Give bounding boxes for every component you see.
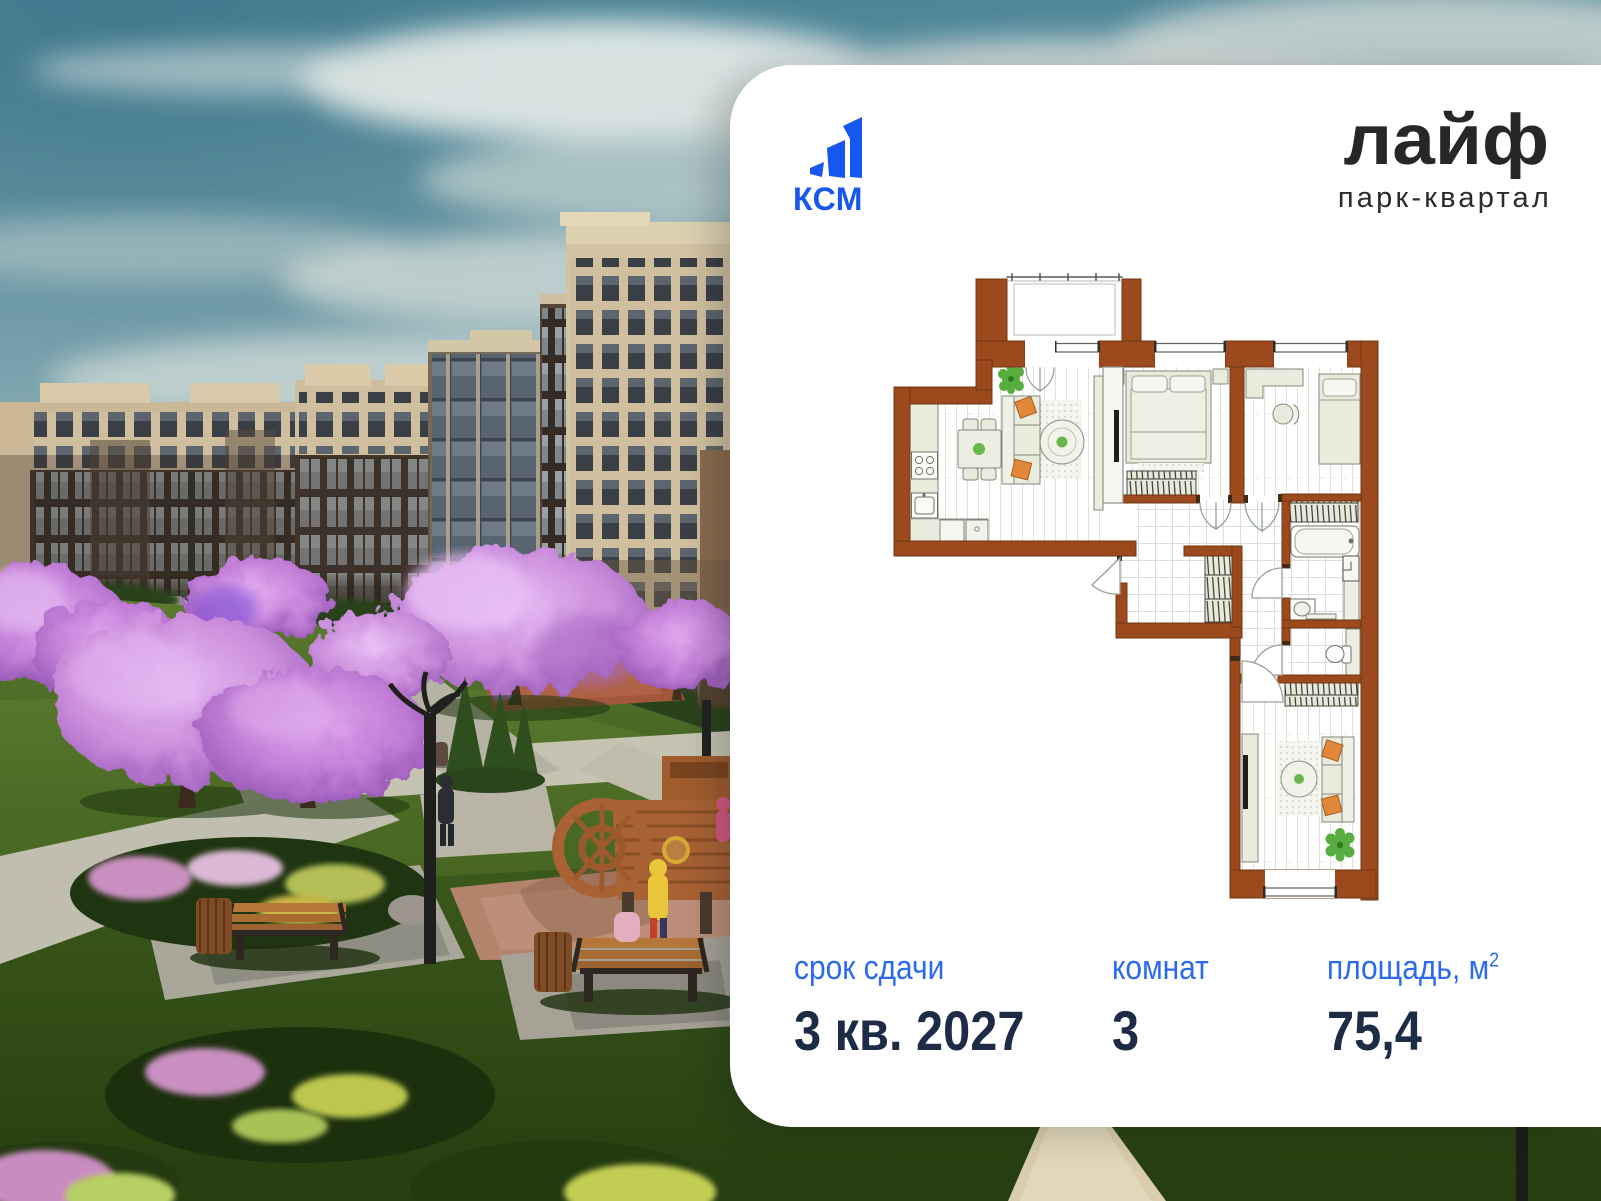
svg-text:КСМ: КСМ bbox=[793, 181, 863, 216]
